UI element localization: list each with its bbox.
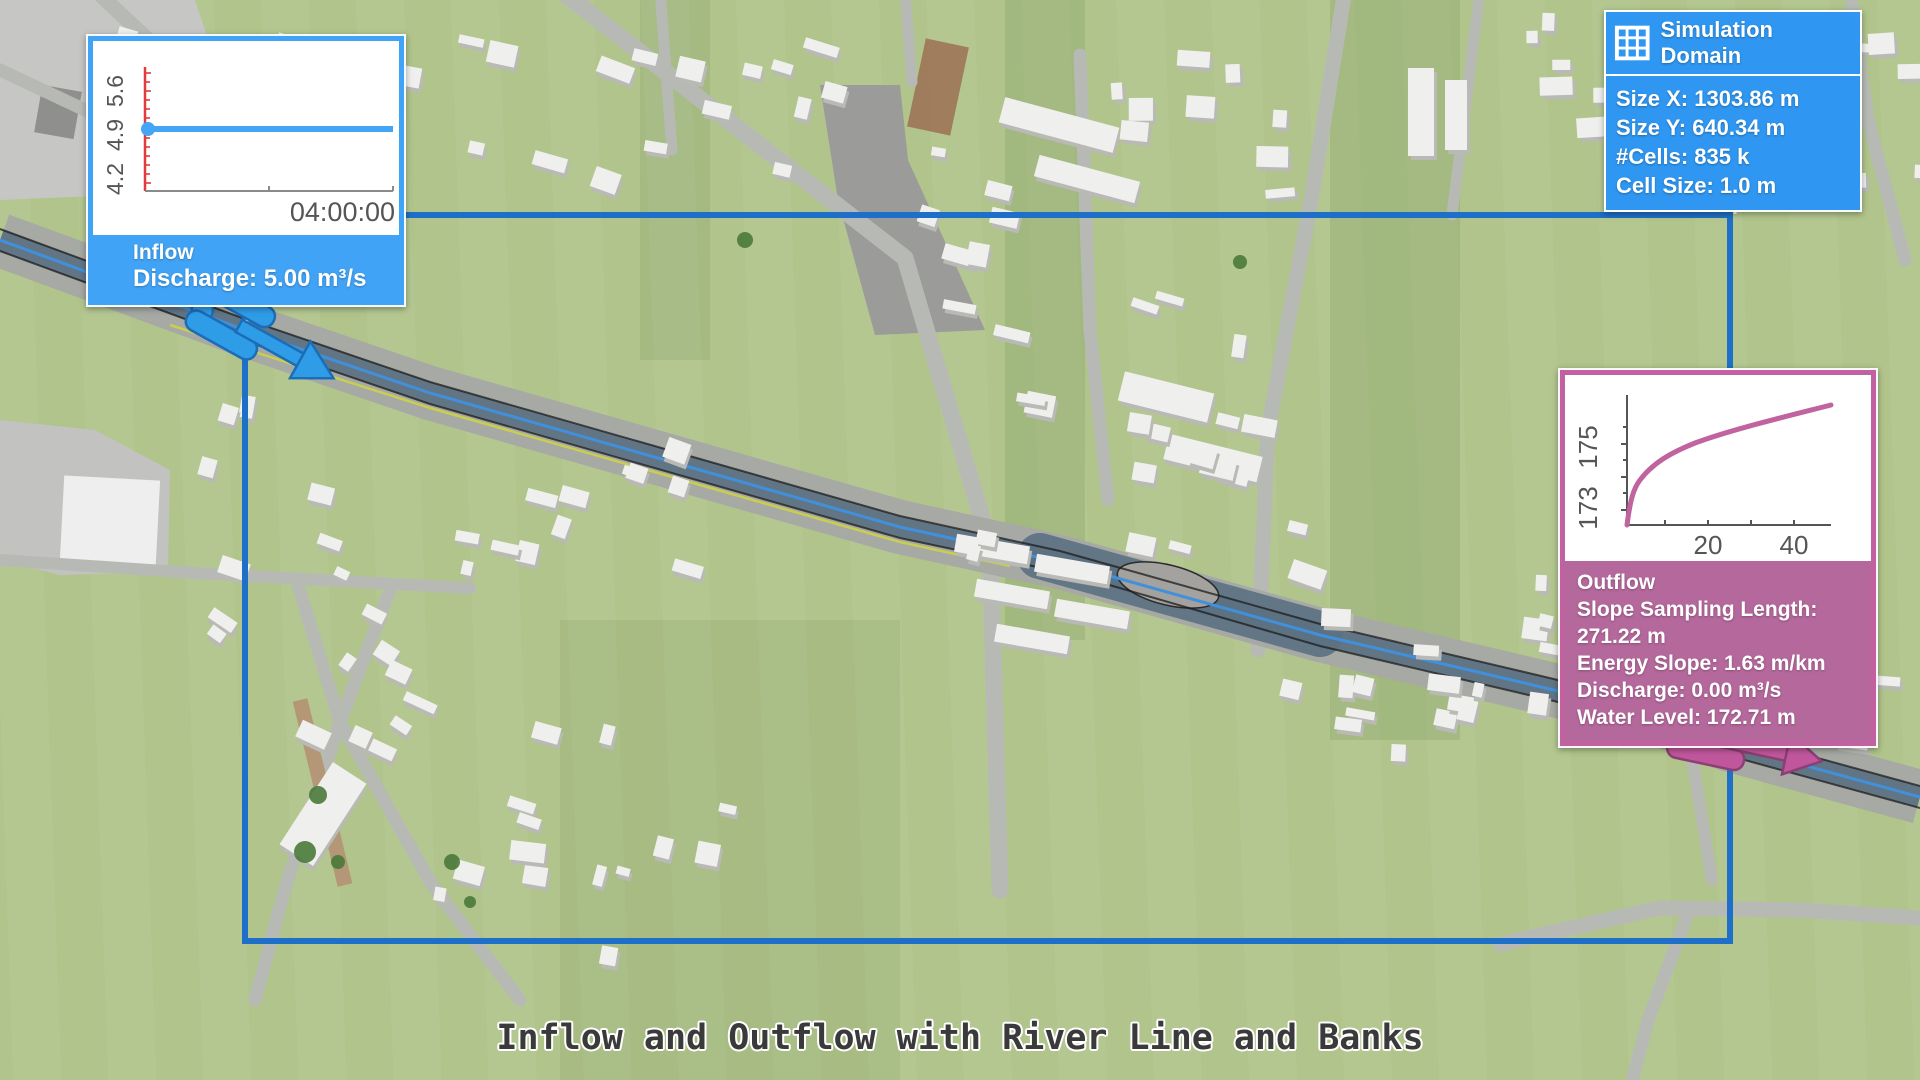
map-title: Inflow and Outflow with River Line and B… [0,1018,1920,1058]
simulation-domain-title: Simulation Domain [1661,17,1852,69]
inflow-info-bar: Inflow Discharge: 5.00 m³/s [93,235,399,300]
outflow-ytick-175: 175 [1573,425,1603,468]
outflow-water-level: Water Level: 172.71 m [1577,704,1861,731]
simulation-domain-panel[interactable]: Simulation Domain Size X: 1303.86 m Size… [1604,10,1862,212]
simulation-domain-stats: Size X: 1303.86 m Size Y: 640.34 m #Cell… [1606,76,1860,210]
inflow-title: Inflow [133,241,391,265]
inflow-current-point [141,122,155,136]
inflow-ytick-low: 4.2 [102,163,128,195]
outflow-rating-curve [1627,405,1831,525]
stat-size-y: Size Y: 640.34 m [1616,113,1850,142]
inflow-discharge-value: Discharge: 5.00 m³/s [133,265,391,293]
outflow-ytick-173: 173 [1573,486,1603,529]
inflow-ytick-mid: 4.9 [102,119,128,151]
stat-cell-count: #Cells: 835 k [1616,142,1850,171]
outflow-slope-sampling-length: Slope Sampling Length: 271.22 m [1577,596,1861,650]
outflow-chart: 175 173 20 40 [1565,375,1871,561]
simulation-domain-header: Simulation Domain [1606,12,1860,76]
inflow-panel[interactable]: 4.2 4.9 5.6 04:00:00 Inflow Discharge: 5… [86,34,406,307]
inflow-xtick-time: 04:00:00 [290,197,395,227]
stat-cell-size: Cell Size: 1.0 m [1616,171,1850,200]
simulation-app-viewport: 4.2 4.9 5.6 04:00:00 Inflow Discharge: 5… [0,0,1920,1080]
grid-icon [1614,24,1651,62]
inflow-ytick-high: 5.6 [102,75,128,107]
stat-size-x: Size X: 1303.86 m [1616,84,1850,113]
outflow-discharge: Discharge: 0.00 m³/s [1577,677,1861,704]
inflow-chart-x-axis [145,186,393,191]
outflow-panel[interactable]: 175 173 20 40 Outflow Slope Sampling Len… [1558,368,1878,748]
outflow-chart-x-axis [1627,520,1831,525]
outflow-xtick-40: 40 [1780,530,1809,560]
inflow-chart: 4.2 4.9 5.6 04:00:00 [93,41,399,235]
outflow-energy-slope: Energy Slope: 1.63 m/km [1577,650,1861,677]
outflow-chart-y-axis [1621,395,1627,525]
outflow-title: Outflow [1577,569,1861,596]
outflow-xtick-20: 20 [1694,530,1723,560]
outflow-info-bar: Outflow Slope Sampling Length: 271.22 m … [1565,561,1871,741]
